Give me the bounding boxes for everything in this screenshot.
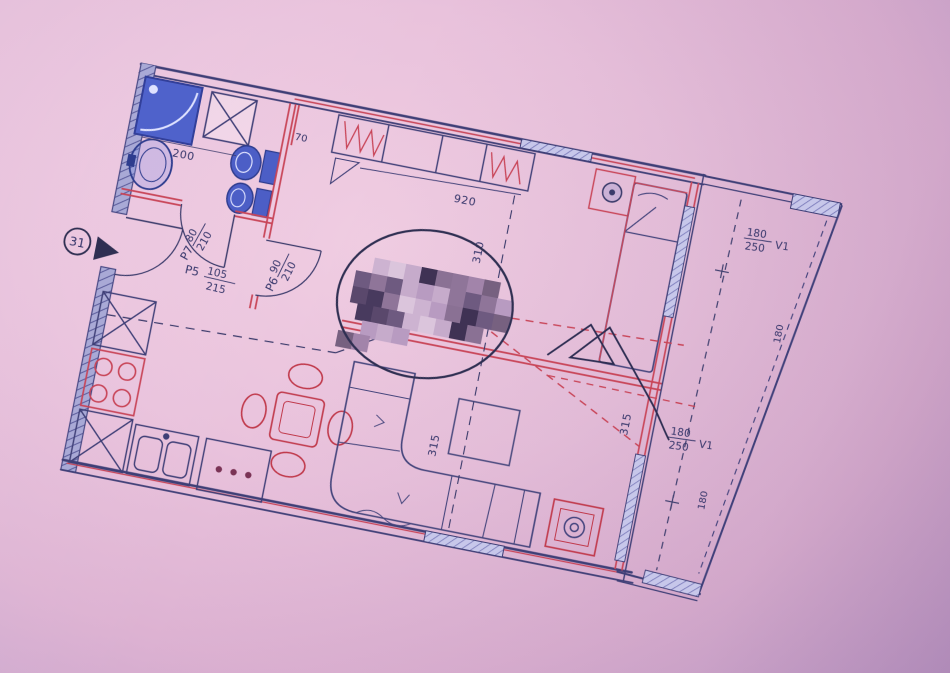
washing-machine-icon [203, 92, 257, 146]
entrance-door-label: P5 105 215 [181, 260, 238, 298]
floor-plan-svg: 200 70 P7 80 210 P5 105 215 31 [0, 46, 872, 639]
dim-bedroom-width: 920 [453, 192, 478, 209]
entrance-door-height: 215 [205, 280, 227, 296]
censor-mosaic [335, 253, 517, 378]
dim-living-b: 315 [617, 412, 634, 437]
win-top-h: 250 [744, 240, 766, 255]
floor-plan-photo: 200 70 P7 80 210 P5 105 215 31 [0, 46, 872, 639]
balcony-railing-hatch-bottom [642, 570, 701, 597]
entrance-arrow-icon [93, 236, 121, 264]
win-top-dim: 180 [772, 324, 786, 345]
bedroom-door-code: P6 [262, 275, 281, 294]
bedroom-door: P6 90 210 [255, 240, 321, 306]
shower-icon [134, 77, 202, 145]
unit-number: 31 [68, 233, 87, 251]
win-bot-dim: 180 [696, 490, 710, 511]
balcony-window-top-label: 180 250 V1 [742, 226, 791, 258]
chair [287, 361, 325, 391]
win-top-code: V1 [774, 240, 789, 254]
entrance-door-code: P5 [184, 262, 201, 279]
dim-living-a: 315 [426, 433, 443, 458]
bedroom-window [520, 139, 592, 162]
corner-sofa [325, 362, 559, 552]
chair [325, 409, 355, 447]
win-bot-code: V1 [698, 439, 713, 453]
unit-number-badge: 31 [62, 226, 122, 264]
dim-niche: 70 [294, 132, 309, 145]
chair [239, 392, 269, 430]
pen-scribble [536, 317, 689, 441]
win-bot-h: 250 [668, 439, 690, 454]
entrance-door-width: 105 [206, 265, 228, 281]
toilet-icon [228, 143, 281, 185]
media-unit [545, 499, 603, 556]
coffee-table [448, 399, 520, 466]
dim-bathroom-width: 200 [171, 146, 196, 163]
chair [269, 450, 307, 480]
balcony-right-edge [699, 193, 842, 607]
balcony-window-bottom-label: 180 250 V1 [666, 425, 715, 457]
bathroom-door-code: P7 [177, 243, 196, 262]
balcony-railing-hatch-top [790, 194, 840, 218]
